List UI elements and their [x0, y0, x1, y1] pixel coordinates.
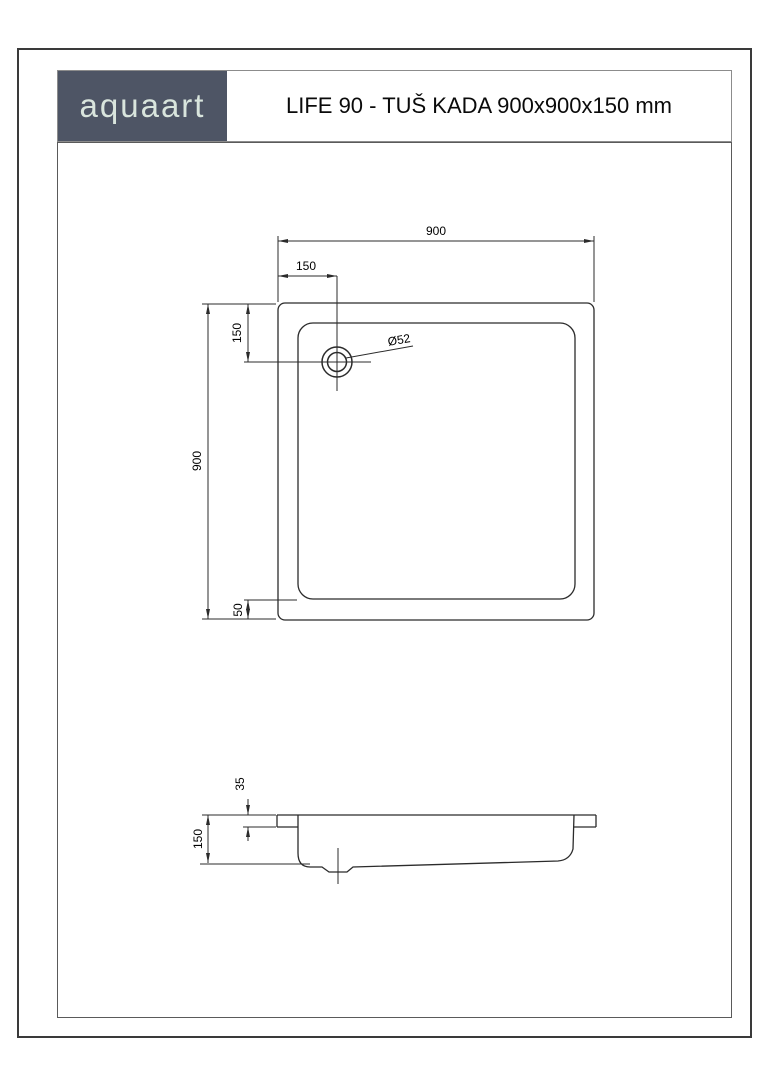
- dim-label-drain-diameter: Ø52: [387, 332, 411, 348]
- top-view-dimensions: [202, 236, 594, 619]
- dim-label-bottom-inset: 50: [232, 603, 244, 616]
- side-view-dimensions: [200, 799, 338, 884]
- top-view-drawing: [278, 303, 594, 620]
- cad-linework: [0, 0, 768, 1086]
- dim-label-drain-offset-top: 150: [231, 323, 243, 343]
- dim-label-drain-offset-left: 150: [296, 260, 316, 272]
- side-view-drawing: [277, 815, 596, 872]
- dim-label-total-height: 150: [192, 829, 204, 849]
- dim-label-rim-height: 35: [234, 777, 246, 790]
- drain-diameter-leader: [346, 346, 413, 358]
- tray-inner-basin-outline: [298, 323, 575, 599]
- dim-label-left-depth: 900: [191, 451, 203, 471]
- tray-outer-outline: [278, 303, 594, 620]
- drawing-sheet-page: { "header": { "logo_text": "aquaart", "t…: [0, 0, 768, 1086]
- dim-label-top-width: 900: [426, 225, 446, 237]
- tray-section-profile: [298, 815, 574, 872]
